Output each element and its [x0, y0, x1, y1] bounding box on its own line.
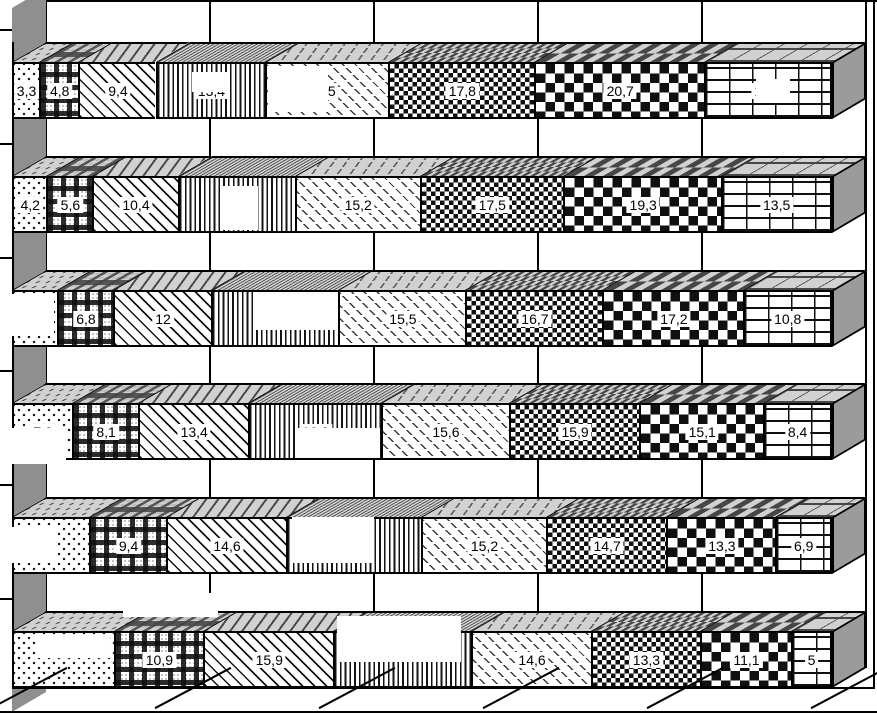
bar-segment-r2-s5: 16,7: [465, 290, 602, 347]
frame-bottom: [0, 711, 877, 713]
redaction-box: [0, 428, 66, 464]
redaction-box: [37, 636, 110, 658]
segment-value-label: 5: [805, 652, 819, 668]
frame-floor-front: [12, 687, 875, 689]
redaction-box: [192, 72, 228, 92]
segment-value-label: 15,9: [558, 424, 591, 440]
bar-segment-r1-s4: 15,2: [295, 176, 420, 233]
bar-segment-r1-s5: 17,5: [420, 176, 564, 233]
segment-value-label: 9,4: [116, 538, 141, 554]
segment-value-label: 19,3: [627, 197, 660, 213]
segment-value-label: 15,5: [386, 311, 419, 327]
y-axis-tick: [0, 370, 12, 372]
bar-segment-r1-s6: 19,3: [563, 176, 721, 233]
bar-segment-r1-s0: 4,2: [12, 176, 46, 233]
y-axis-tick: [0, 484, 12, 486]
redaction-box: [292, 517, 374, 563]
segment-value-label: 14,6: [210, 538, 243, 554]
segment-value-label: 9,4: [105, 83, 130, 99]
segment-value-label: 6,9: [791, 538, 816, 554]
segment-value-label: 14,7: [590, 538, 623, 554]
redaction-box: [0, 527, 58, 563]
bar-segment-r2-s4: 15,5: [338, 290, 465, 347]
frame-right: [873, 0, 875, 688]
bar-segment-r2-s6: 17,2: [602, 290, 743, 347]
segment-value-label: 3,3: [14, 83, 39, 99]
bar-segment-r4-s4: 15,2: [421, 517, 546, 574]
stacked-bar-chart-3d: 3,34,89,413,41517,820,715,64,25,610,414,…: [0, 0, 877, 714]
redaction-box: [756, 79, 790, 103]
bar-segment-r0-s1: 4,8: [39, 62, 78, 119]
segment-value-label: 14,6: [515, 652, 548, 668]
bar-segment-r4-s1: 9,4: [89, 517, 166, 574]
redaction-box: [337, 616, 461, 662]
segment-value-label: 20,7: [604, 83, 637, 99]
segment-value-label: 8,1: [93, 424, 118, 440]
segment-value-label: 17,8: [446, 83, 479, 99]
bar-segment-r0-s6: 20,7: [534, 62, 704, 119]
bar-segment-r1-s1: 5,6: [46, 176, 92, 233]
segment-value-label: 11,1: [730, 652, 762, 668]
segment-value-label: 10,4: [119, 197, 152, 213]
bar-segment-r3-s7: 8,4: [763, 403, 832, 460]
bar-segment-r3-s2: 13,4: [138, 403, 248, 460]
bar-segment-r1-s2: 10,4: [92, 176, 177, 233]
bar-segment-r4-s2: 14,6: [166, 517, 286, 574]
bar-segment-r1-s7: 13,5: [721, 176, 832, 233]
segment-value-label: 15,9: [253, 652, 286, 668]
bar-segment-r3-s5: 15,9: [509, 403, 639, 460]
bar-segment-r5-s6: 11,1: [700, 631, 791, 688]
bar-segment-r4-s6: 13,3: [666, 517, 775, 574]
segment-value-label: 13,4: [178, 424, 211, 440]
redaction-box: [298, 428, 380, 458]
bar-segment-r5-s7: 5: [791, 631, 832, 688]
bar-segment-r2-s1: 6,8: [57, 290, 113, 347]
bar-segment-r4-s5: 14,7: [546, 517, 667, 574]
segment-value-label: 10,9: [143, 652, 176, 668]
segment-value-label: 17,5: [476, 197, 509, 213]
segment-value-label: 15,2: [342, 197, 375, 213]
segment-value-label: 12: [152, 311, 174, 327]
segment-value-label: 15,2: [468, 538, 501, 554]
redaction-box: [123, 593, 218, 617]
bar-segment-r0-s0: 3,3: [12, 62, 39, 119]
bar-segment-r0-s5: 17,8: [388, 62, 534, 119]
redaction-box: [4, 294, 54, 336]
redaction-box: [256, 292, 336, 330]
bar-segment-r5-s2: 15,9: [203, 631, 333, 688]
segment-value-label: 16,7: [518, 311, 551, 327]
gridline: [865, 0, 867, 668]
segment-value-label: 6,8: [73, 311, 98, 327]
bar-segment-r5-s1: 10,9: [114, 631, 203, 688]
bar-segment-r3-s1: 8,1: [72, 403, 138, 460]
frame-top: [46, 0, 877, 2]
bar-segment-r5-s4: 14,6: [471, 631, 591, 688]
bar-segment-r2-s7: 10,8: [743, 290, 832, 347]
y-axis-tick: [0, 143, 12, 145]
segment-value-label: 15,6: [429, 424, 462, 440]
segment-value-label: 13,5: [760, 197, 793, 213]
segment-value-label: 10,8: [771, 311, 804, 327]
redaction-box: [222, 186, 258, 230]
bar-segment-r5-s5: 13,3: [591, 631, 700, 688]
segment-value-label: 4,2: [17, 197, 42, 213]
y-axis-tick: [0, 598, 12, 600]
segment-value-label: 5,6: [58, 197, 83, 213]
bar-segment-r0-s2: 9,4: [78, 62, 155, 119]
segment-value-label: 4,8: [47, 83, 72, 99]
segment-value-label: 13,3: [630, 652, 663, 668]
y-axis-tick: [0, 29, 12, 31]
y-axis-tick: [0, 257, 12, 259]
bar-segment-r3-s6: 15,1: [639, 403, 763, 460]
redaction-box: [268, 66, 328, 112]
bar-segment-r3-s4: 15,6: [381, 403, 509, 460]
bar-segment-r2-s2: 12: [113, 290, 211, 347]
segment-value-label: 13,3: [705, 538, 738, 554]
frame-left-front: [12, 42, 14, 688]
segment-value-label: 15,1: [686, 424, 719, 440]
segment-value-label: 8,4: [785, 424, 810, 440]
segment-value-label: 17,2: [657, 311, 690, 327]
bar-segment-r4-s7: 6,9: [775, 517, 832, 574]
